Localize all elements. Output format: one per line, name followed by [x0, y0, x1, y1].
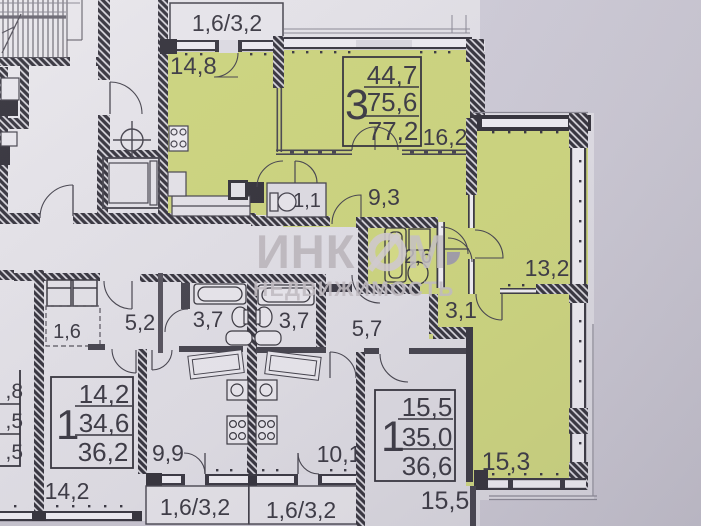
- svg-text:15,3: 15,3: [482, 448, 531, 476]
- svg-text:36,2: 36,2: [78, 437, 129, 467]
- svg-text:,5: ,5: [5, 441, 23, 464]
- svg-text:15,5: 15,5: [402, 392, 453, 422]
- svg-text:1,1: 1,1: [293, 190, 321, 212]
- svg-text:5,7: 5,7: [352, 316, 383, 341]
- svg-text:5,2: 5,2: [125, 310, 156, 335]
- svg-text:34,6: 34,6: [79, 408, 130, 438]
- svg-text:75,6: 75,6: [367, 87, 418, 117]
- svg-text:14,8: 14,8: [170, 53, 217, 80]
- svg-text:77,2: 77,2: [368, 116, 419, 146]
- svg-text:1,6/3,2: 1,6/3,2: [192, 10, 262, 36]
- svg-text:1,6: 1,6: [53, 321, 81, 343]
- svg-text:,8: ,8: [5, 380, 23, 403]
- svg-text:3: 3: [345, 81, 369, 129]
- svg-text:,5: ,5: [5, 410, 23, 433]
- svg-text:35,0: 35,0: [402, 422, 453, 452]
- svg-text:НЕДВИЖИМОСТЬ: НЕДВИЖИМОСТЬ: [253, 278, 455, 301]
- svg-text:М: М: [407, 225, 446, 278]
- svg-text:44,7: 44,7: [367, 60, 418, 90]
- svg-text:13,2: 13,2: [525, 255, 570, 281]
- svg-text:15,5: 15,5: [421, 487, 470, 515]
- svg-text:1: 1: [56, 401, 79, 448]
- svg-text:10,1: 10,1: [317, 441, 362, 467]
- svg-text:1,6/3,2: 1,6/3,2: [266, 497, 336, 523]
- svg-text:3,7: 3,7: [279, 308, 310, 333]
- svg-text:16,2: 16,2: [423, 124, 468, 150]
- svg-text:14,2: 14,2: [79, 379, 130, 409]
- svg-text:9,9: 9,9: [152, 440, 184, 466]
- svg-text:36,6: 36,6: [402, 451, 453, 481]
- svg-text:9,3: 9,3: [368, 184, 400, 210]
- svg-text:14,2: 14,2: [45, 478, 90, 504]
- svg-text:1,6/3,2: 1,6/3,2: [160, 494, 230, 520]
- svg-text:3,7: 3,7: [193, 307, 224, 332]
- svg-text:ИНК: ИНК: [256, 225, 355, 278]
